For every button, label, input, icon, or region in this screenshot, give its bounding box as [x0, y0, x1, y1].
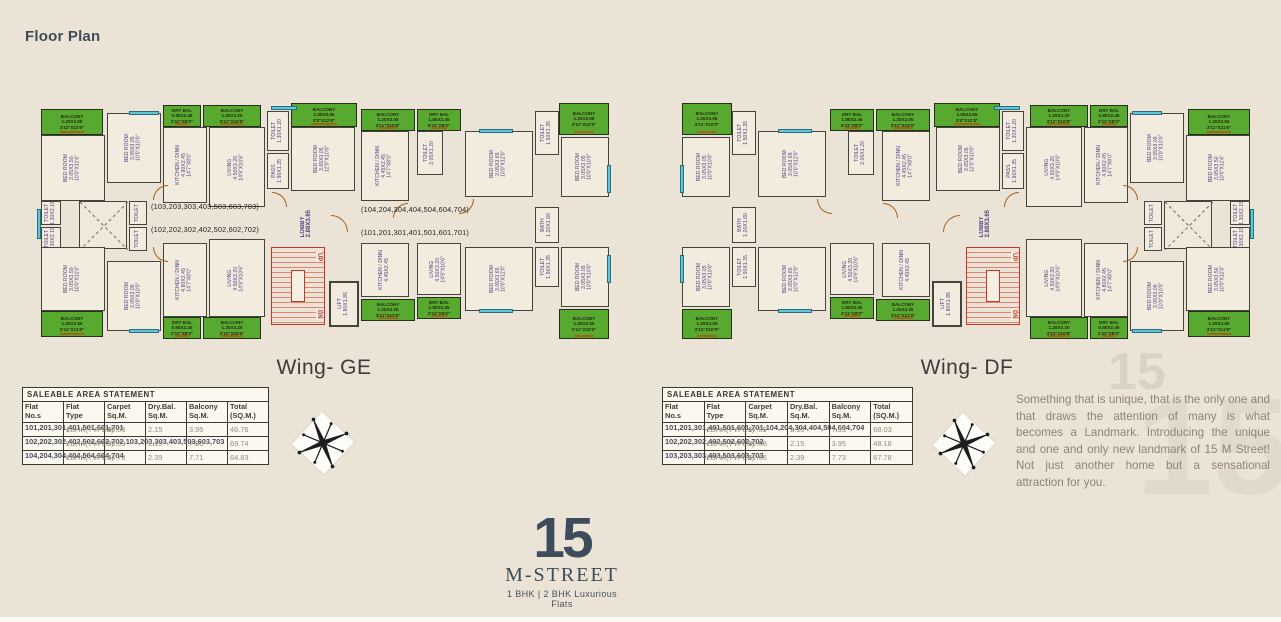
room-label: BALCONY1.20X3.053'11"X10'0": [572, 316, 597, 332]
flat-numbers-annotation: (102,202,302,402,502,602,702): [151, 225, 259, 234]
column-header: FlatNo.s: [23, 402, 64, 423]
room-label: TOILET: [135, 204, 141, 222]
room-label: BALCONY1.20X3.353'11"X11'0": [376, 302, 400, 318]
balcony: BALCONY1.05X3.653'5"X12'0": [291, 103, 357, 127]
room-label: LIVING4.50X3.2014'9"X10'6": [228, 265, 245, 292]
room-bed-room: BED ROOM3.05X3.6510'0"X12'0": [758, 131, 826, 197]
room-label: BED ROOM3.05X3.0510'0"X10'0": [576, 153, 593, 181]
cell-type: 2BHK(TYPE2): [704, 450, 746, 464]
door-swing-icon: [883, 203, 898, 218]
window-strip: [479, 309, 513, 313]
door-swing-icon: [272, 192, 287, 207]
room-bed-room: BED ROOM3.05X3.5010'0"X11'6": [41, 135, 105, 201]
cell-balcony: 7.73: [829, 450, 871, 464]
room-living: LIVING4.50X3.2014'9"X10'6": [1026, 239, 1082, 317]
room-label: BED ROOM3.05X3.5010'0"X11'6": [64, 265, 81, 293]
cell-type: 1BHK(TYPE2): [64, 423, 105, 437]
room-label: KITCHEN / DINN4.45X2.4514'7"X8'0": [376, 146, 393, 186]
room-label: TOILET1.30X2.15: [1234, 201, 1246, 225]
compass-icon: [292, 412, 354, 474]
balcony: BALCONY1.20X3.053'11"X10'0": [559, 309, 609, 339]
room-label: KITCHEN / DINN4.45X2.45: [379, 250, 391, 290]
room-label: BATH1.20X1.60: [541, 213, 553, 237]
room-lift: LIFT1.80X1.85: [329, 281, 359, 327]
window-strip: [1132, 111, 1162, 115]
door-swing-icon: [153, 247, 168, 262]
room-label: BED ROOM3.05X3.0510'0"X10'0": [1148, 134, 1165, 162]
cell-total: 48.18: [871, 436, 913, 450]
room-label: BALCONY1.20X3.053'11"X10'0": [695, 316, 720, 332]
room-label: TOILET1.50X1.35: [541, 255, 553, 279]
room-bed-room: BED ROOM3.05X3.0510'0"X10'0": [682, 247, 730, 307]
stairs-up-label: UP: [1011, 252, 1017, 262]
column-header: FlatType: [64, 402, 105, 423]
window-strip: [271, 106, 297, 110]
room-label: BALCONY1.05X3.653'5"X12'0": [313, 107, 336, 123]
room-kitchen-dinn: KITCHEN / DINN4.80X2.4514'7"X8'0": [1084, 127, 1128, 203]
room-label: KITCHEN / DINN4.45X2.4514'7"X8'0": [897, 146, 914, 186]
cell-drybal: 2.39: [146, 450, 187, 464]
cell-balcony: 7.71: [187, 450, 228, 464]
stairs-up-label: UP: [316, 252, 322, 262]
room-label: DRY BAL0.90X2.452'11"X8'0": [1098, 320, 1120, 336]
room-label: KITCHEN / DINN4.80X2.4514'7"X8'0": [1097, 260, 1114, 300]
window-strip: [129, 111, 159, 115]
room-bed-room: BED ROOM3.05X3.0510'0"X10'0": [561, 137, 609, 197]
room-kitchen-dinn: KITCHEN / DINN4.80X2.4514'7"X8'0": [163, 243, 207, 317]
cell-type: 2BHK(TYPE4): [64, 450, 105, 464]
room-label: TOILET2.05X1.20: [855, 141, 867, 165]
room-living: LIVING4.50X3.2014'9"X10'6": [1026, 127, 1082, 207]
room-bed-room: BED ROOM3.05X3.0510'0"X10'0": [107, 261, 161, 331]
column-header: Total(SQ.M.): [228, 402, 269, 423]
window-strip: [479, 129, 513, 133]
staircase: UP DN: [966, 247, 1020, 325]
cell-flats: 104,204,304,404,504,604,704: [23, 450, 64, 464]
room-toilet: TOILET1.30X1.20: [1002, 111, 1024, 151]
room-living: LIVING4.50X3.2014'9"X10'6": [209, 239, 265, 317]
window-strip: [680, 255, 684, 283]
room-label: BED ROOM3.05X3.0510'0"X10'0": [697, 153, 714, 181]
room-label: PASS1.90X1.35: [1007, 159, 1019, 183]
balcony: BALCONY1.20X3.503'11"X11'6": [1188, 311, 1250, 337]
room-label: LIVING4.50X3.2014'9"X10'6": [430, 256, 447, 283]
cell-total: 46.76: [228, 423, 269, 437]
cell-carpet: 54.73: [105, 450, 146, 464]
column-header: BalconySq.M.: [829, 402, 871, 423]
door-swing-icon: [331, 215, 348, 232]
room-label: DRY BAL1.80X2.455'11"X8'0": [841, 112, 863, 128]
room-toilet: TOILET2.05X1.20: [417, 131, 443, 175]
column-header: FlatNo.s: [663, 402, 705, 423]
room-label: LIFT1.80X1.85: [941, 292, 953, 316]
room-toilet: TOILET: [129, 227, 147, 251]
balcony: DRY BAL0.90X2.452'11"X8'0": [163, 317, 201, 339]
room-living: LIVING4.50X3.2014'9"X10'6": [417, 243, 461, 295]
room-toilet: TOILET: [1144, 201, 1162, 225]
balcony: BALCONY1.20X3.353'11"X11'0": [876, 299, 930, 321]
room-label: BED ROOM3.05X3.0510'0"X10'0": [125, 134, 142, 162]
room-label: BALCONY1.20X3.203'11"X10'6": [220, 320, 245, 336]
window-strip: [1132, 329, 1162, 333]
column-header: CarpetSq.M.: [105, 402, 146, 423]
room-kitchen-dinn: KITCHEN / DINN4.45X2.4514'7"X8'0": [882, 131, 930, 201]
balcony: BALCONY1.20X3.053'11"X10'0": [876, 109, 930, 131]
room-bed-room: BED ROOM3.05X3.6510'0"X12'0": [758, 247, 826, 311]
room-bed-room: BED ROOM3.05X3.5010'0"X11'6": [1186, 247, 1250, 311]
room-label: KITCHEN / DINN4.45X2.45: [900, 250, 912, 290]
cell-carpet: 42.08: [746, 436, 788, 450]
room-label: BALCONY1.20X3.053'11"X10'0": [572, 111, 597, 127]
room-bed-room: BED ROOM3.05X3.6510'0"X12'0": [465, 131, 533, 197]
room-kitchen-dinn: KITCHEN / DINN4.45X2.45: [361, 243, 409, 297]
door-swing-icon: [153, 185, 168, 200]
room-kitchen-dinn: KITCHEN / DINN4.45X2.45: [882, 243, 930, 297]
page-title: Floor Plan: [25, 28, 100, 45]
cell-total: 69.74: [228, 436, 269, 450]
stair-landing: [986, 270, 1000, 302]
cell-total: 68.03: [871, 423, 913, 437]
room-label: TOILET: [135, 230, 141, 248]
window-strip: [37, 209, 41, 239]
cell-flats: 101,201,301,401,501,601,701: [23, 423, 64, 437]
cell-type: 2BHK(TYPE1): [704, 423, 746, 437]
logo-tagline: 1 BHK | 2 BHK Luxurious Flats: [495, 589, 629, 609]
room-toilet: TOILET1.50X1.35: [732, 111, 756, 155]
balcony: DRY BAL0.90X2.452'11"X8'0": [1090, 317, 1128, 339]
cell-balcony: 3.95: [187, 423, 228, 437]
column-header: Dry.Bal.Sq.M.: [146, 402, 187, 423]
room-label: BALCONY1.05X3.653'5"X12'0": [956, 107, 979, 123]
balcony: DRY BAL1.80X2.455'11"X8'0": [417, 109, 461, 131]
room-label: DRY BAL1.80X2.452'11"X8'0": [428, 300, 450, 316]
room-label: BALCONY1.20X3.203'11"X10'6": [1047, 320, 1072, 336]
room-bed-room: BED ROOM3.05X3.0510'0"X10'0": [107, 113, 161, 183]
room-label: BED ROOM3.05X3.5010'0"X11'6": [64, 154, 81, 182]
balcony: DRY BAL0.90X2.452'11"X8'0": [1090, 105, 1128, 127]
duct-shaft: [79, 201, 127, 249]
saleable-area-table-df: SALEABLE AREA STATEMENTFlatNo.sFlatTypeC…: [662, 387, 913, 465]
room-label: DRY BAL1.80X2.452'11"X8'0": [841, 300, 863, 316]
balcony: BALCONY1.20X3.503'11"X11'6": [41, 311, 103, 337]
compass-rose-icon: [287, 407, 360, 480]
balcony: BALCONY1.20X3.053'11"X10'0": [682, 309, 732, 339]
room-label: BED ROOM3.65X3.0512'0"X10'0": [314, 145, 331, 173]
room-toilet: TOILET1.30X2.15: [1230, 201, 1250, 225]
room-toilet: TOILET2.05X1.20: [848, 131, 874, 175]
floor-plan-wing-ge: BALCONY1.20X3.503'11"X11'6"BED ROOM3.05X…: [35, 97, 613, 349]
column-header: Total(SQ.M.): [871, 402, 913, 423]
room-label: BED ROOM3.05X3.0510'0"X10'0": [1148, 282, 1165, 310]
cell-carpet: 40.66: [105, 423, 146, 437]
room-label: KITCHEN / DINN4.80X2.4514'7"X8'0": [1097, 145, 1114, 185]
cell-drybal: 2.15: [787, 436, 829, 450]
room-label: BALCONY1.20X3.353'11"X11'0": [891, 302, 915, 318]
room-kitchen-dinn: KITCHEN / DINN4.80X2.4514'7"X8'0": [163, 127, 207, 203]
room-label: LIVING4.50X3.2014'9"X10'6": [1045, 154, 1062, 181]
flat-numbers-annotation: (101,201,301,401,501,601,701): [361, 228, 469, 237]
room-label: DRY BAL1.80X2.455'11"X8'0": [428, 112, 450, 128]
column-header: Dry.Bal.Sq.M.: [787, 402, 829, 423]
room-label: BALCONY1.20X3.503'11"X11'6": [1207, 114, 1231, 130]
room-label: LIVING4.50X3.2014'9"X10'6": [1045, 265, 1062, 292]
door-swing-icon: [817, 199, 832, 214]
room-label: TOILET1.50X1.35: [541, 121, 553, 145]
room-label: BALCONY1.20X3.053'11"X10'0": [891, 112, 916, 128]
window-strip: [778, 309, 812, 313]
room-label: BALCONY1.20X3.203'11"X10'6": [1047, 108, 1072, 124]
cell-total: 67.78: [871, 450, 913, 464]
room-lift: LIFT1.80X1.85: [932, 281, 962, 327]
compass-icon: [933, 413, 995, 475]
door-swing-icon: [1123, 247, 1138, 262]
room-label: BED ROOM3.05X3.5010'0"X11'6": [1209, 154, 1226, 182]
door-swing-icon: [943, 215, 960, 232]
balcony: BALCONY1.05X3.653'5"X12'0": [934, 103, 1000, 127]
room-label: BATH1.20X1.60: [738, 213, 750, 237]
room-bath: BATH1.20X1.60: [732, 207, 756, 243]
room-bed-room: BED ROOM3.65X3.0512'0"X10'0": [936, 127, 1000, 191]
balcony: BALCONY1.20X3.203'11"X10'6": [1030, 105, 1088, 127]
room-toilet: TOILET1.30X2.15: [41, 201, 61, 225]
cell-drybal: 2.15: [146, 423, 187, 437]
table-title: SALEABLE AREA STATEMENT: [663, 388, 913, 402]
balcony: BALCONY1.20X3.503'11"X11'6": [41, 109, 103, 135]
room-kitchen-dinn: KITCHEN / DINN4.45X2.4514'7"X8'0": [361, 131, 409, 201]
room-label: BED ROOM3.05X3.0510'0"X10'0": [576, 263, 593, 291]
cell-flats: 101,201,301,401,501,601,701,104,204,304,…: [663, 423, 705, 437]
lobby-label: LOBBY2.88X3.65: [293, 193, 319, 255]
cell-carpet: 57.66: [746, 450, 788, 464]
column-header: BalconySq.M.: [187, 402, 228, 423]
cell-total: 64.83: [228, 450, 269, 464]
compass-rose-icon: [928, 408, 1001, 481]
room-label: BED ROOM3.05X3.6510'0"X12'0": [783, 150, 800, 178]
room-label: TOILET1.50X1.35: [738, 121, 750, 145]
room-label: BED ROOM3.05X3.6510'0"X12'0": [490, 150, 507, 178]
cell-flats: 102,202,302,402,502,602,702: [663, 436, 705, 450]
room-toilet: TOILET1.30X1.20: [267, 111, 289, 151]
window-strip: [129, 329, 159, 333]
room-toilet: TOILET: [129, 201, 147, 225]
room-label: BALCONY1.20X3.503'11"X11'6": [1207, 316, 1231, 332]
room-bed-room: BED ROOM3.05X3.6510'0"X12'0": [465, 247, 533, 311]
balcony: DRY BAL1.80X2.455'11"X8'0": [830, 109, 874, 131]
room-label: BALCONY1.20X3.503'11"X11'6": [60, 316, 84, 332]
room-label: TOILET: [1150, 204, 1156, 222]
room-label: TOILET1.30X2.15: [45, 201, 57, 225]
balcony: BALCONY1.20X3.053'11"X10'0": [361, 109, 415, 131]
room-label: LIFT1.80X1.85: [338, 292, 350, 316]
room-label: BALCONY1.20X3.203'11"X10'6": [220, 108, 245, 124]
brochure-page: Floor Plan BALCONY1.20X3.503'11"X11'6"BE…: [0, 0, 1281, 622]
room-label: DRY BAL0.90X2.452'11"X8'0": [171, 108, 193, 124]
stairs-down-label: DN: [316, 309, 322, 320]
room-label: BED ROOM3.65X3.0512'0"X10'0": [959, 145, 976, 173]
room-label: KITCHEN / DINN4.80X2.4514'7"X8'0": [176, 260, 193, 300]
room-label: DRY BAL0.90X2.452'11"X8'0": [1098, 108, 1120, 124]
window-strip: [778, 129, 812, 133]
balcony: BALCONY1.20X3.503'11"X11'6": [1188, 109, 1250, 135]
logo-15: 15: [495, 513, 629, 563]
room-bed-room: BED ROOM3.05X3.5010'0"X11'6": [41, 247, 105, 311]
flat-numbers-annotation: (104,204,304,404,504,604,704): [361, 205, 469, 214]
window-strip: [1250, 209, 1254, 239]
balcony: BALCONY1.20X3.203'11"X10'6": [1030, 317, 1088, 339]
window-strip: [994, 106, 1020, 110]
room-label: BED ROOM3.05X3.6510'0"X12'0": [490, 265, 507, 293]
marketing-paragraph: Something that is unique, that is the on…: [1016, 392, 1270, 491]
room-living: LIVING4.50X3.2014'9"X10'6": [209, 127, 265, 207]
room-label: TOILET1.30X1.20: [272, 119, 284, 143]
stair-landing: [291, 270, 305, 302]
wing-ge-label: Wing- GE: [35, 356, 613, 380]
room-kitchen-dinn: KITCHEN / DINN4.80X2.4514'7"X8'0": [1084, 243, 1128, 317]
room-label: BALCONY1.20X3.053'11"X10'0": [695, 111, 720, 127]
logo-name: M-STREET: [495, 564, 629, 587]
room-label: TOILET2.05X1.20: [424, 141, 436, 165]
room-toilet: TOILET: [1144, 227, 1162, 251]
cell-flats: 102,202,302,402,502,602,702,103,203,303,…: [23, 436, 64, 450]
cell-flats: 103,203,303,403,503,603,703: [663, 450, 705, 464]
room-toilet: TOILET1.50X1.35: [535, 247, 559, 287]
saleable-area-table-ge: SALEABLE AREA STATEMENTFlatNo.sFlatTypeC…: [22, 387, 269, 465]
balcony: DRY BAL0.90X2.452'11"X8'0": [163, 105, 201, 127]
room-label: BED ROOM3.05X3.0510'0"X10'0": [697, 263, 714, 291]
room-label: LIVING4.50X3.2014'9"X10'6": [228, 154, 245, 181]
room-label: PASS1.90X1.35: [272, 159, 284, 183]
floor-plan-wing-df: BALCONY1.20X3.503'11"X11'6"BED ROOM3.05X…: [678, 97, 1256, 349]
room-label: DRY BAL0.90X2.452'11"X8'0": [171, 320, 193, 336]
room-bed-room: BED ROOM3.05X3.0510'0"X10'0": [1130, 113, 1184, 183]
duct-shaft: [1164, 201, 1212, 249]
room-bed-room: BED ROOM3.05X3.0510'0"X10'0": [561, 247, 609, 307]
balcony: DRY BAL1.80X2.452'11"X8'0": [417, 297, 461, 319]
room-label: TOILET1.30X1.20: [1007, 119, 1019, 143]
cell-drybal: 2.39: [787, 450, 829, 464]
window-strip: [607, 255, 611, 283]
door-swing-icon: [1004, 192, 1019, 207]
bottom-strip: [0, 617, 1281, 622]
room-label: BALCONY1.20X3.053'11"X10'0": [376, 112, 401, 128]
project-logo: 15 M-STREET 1 BHK | 2 BHK Luxurious Flat…: [495, 513, 629, 609]
cell-balcony: 3.95: [829, 436, 871, 450]
cell-type: 2BHK(TYPE3): [64, 436, 105, 450]
window-strip: [680, 165, 684, 193]
room-label: KITCHEN / DINN4.80X2.4514'7"X8'0": [176, 145, 193, 185]
room-label: TOILET1.50X1.35: [738, 255, 750, 279]
column-header: FlatType: [704, 402, 746, 423]
room-bed-room: BED ROOM3.05X3.0510'0"X10'0": [1130, 261, 1184, 331]
balcony: BALCONY1.20X3.353'11"X11'0": [361, 299, 415, 321]
room-bed-room: BED ROOM3.65X3.0512'0"X10'0": [291, 127, 355, 191]
room-label: BALCONY1.20X3.503'11"X11'6": [60, 114, 84, 130]
balcony: BALCONY1.20X3.203'11"X10'6": [203, 105, 261, 127]
balcony: DRY BAL1.80X2.452'11"X8'0": [830, 297, 874, 319]
flat-numbers-annotation: (103,203,303,403,503,603,703): [151, 202, 259, 211]
room-label: TOILET: [1150, 230, 1156, 248]
room-living: LIVING4.50X3.2014'9"X10'6": [830, 243, 874, 295]
room-label: BED ROOM3.05X3.6510'0"X12'0": [783, 265, 800, 293]
staircase: UP DN: [271, 247, 325, 325]
room-label: BED ROOM3.05X3.0510'0"X10'0": [125, 282, 142, 310]
balcony: BALCONY1.20X3.053'11"X10'0": [559, 103, 609, 135]
room-bath: BATH1.20X1.60: [535, 207, 559, 243]
room-label: BED ROOM3.05X3.5010'0"X11'6": [1209, 265, 1226, 293]
column-header: CarpetSq.M.: [746, 402, 788, 423]
stairs-down-label: DN: [1011, 309, 1017, 320]
room-pass: PASS1.90X1.35: [1002, 153, 1024, 189]
lobby-label: LOBBY2.88X3.65: [972, 193, 998, 255]
room-toilet: TOILET1.50X1.35: [535, 111, 559, 155]
cell-type: 1BHK(TYPE1): [704, 436, 746, 450]
table-title: SALEABLE AREA STATEMENT: [23, 388, 269, 402]
room-label: LIVING4.50X3.2014'9"X10'6": [843, 256, 860, 283]
room-toilet: TOILET1.50X1.35: [732, 247, 756, 287]
balcony: BALCONY1.20X3.203'11"X10'6": [203, 317, 261, 339]
room-bed-room: BED ROOM3.05X3.5010'0"X11'6": [1186, 135, 1250, 201]
balcony: BALCONY1.20X3.053'11"X10'0": [682, 103, 732, 135]
window-strip: [607, 165, 611, 193]
room-pass: PASS1.90X1.35: [267, 153, 289, 189]
door-swing-icon: [1123, 185, 1138, 200]
room-bed-room: BED ROOM3.05X3.0510'0"X10'0": [682, 137, 730, 197]
